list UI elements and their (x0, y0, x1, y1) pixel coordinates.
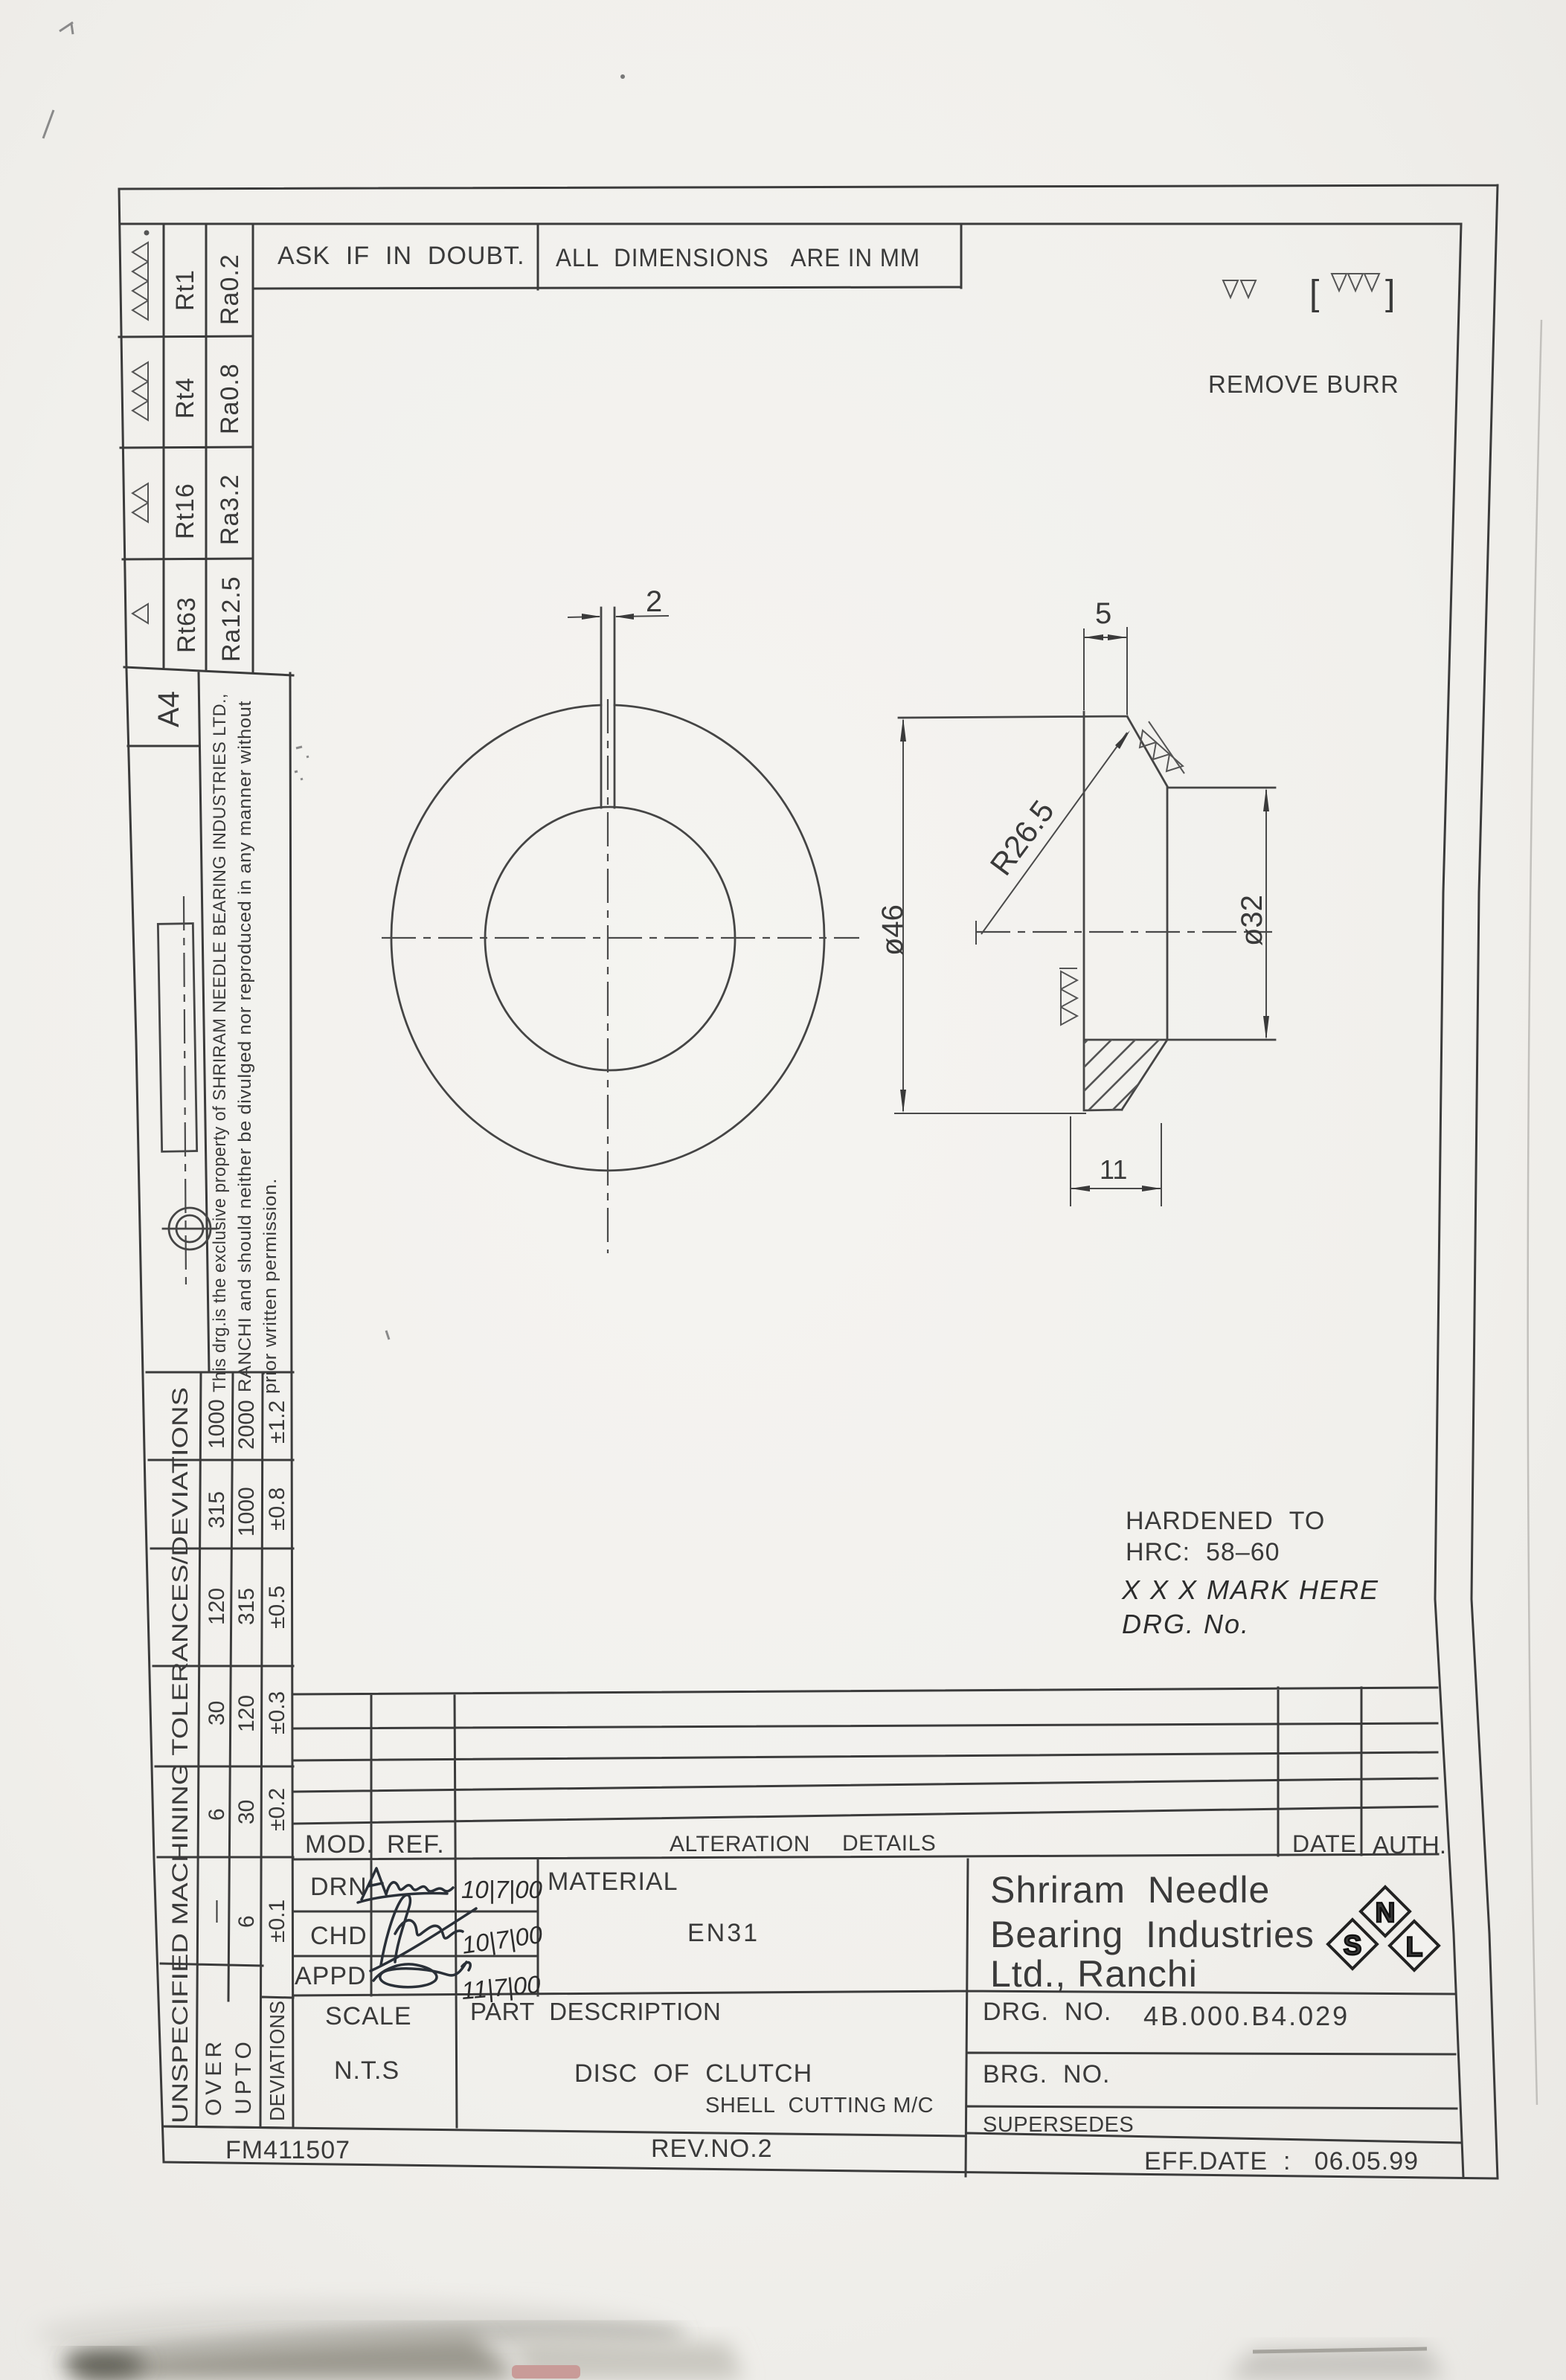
svg-text:1000: 1000 (205, 1399, 229, 1449)
svg-text:Ltd., Ranchi: Ltd., Ranchi (990, 1953, 1198, 1995)
svg-text:1000: 1000 (234, 1487, 259, 1537)
svg-text:MOD.: MOD. (305, 1830, 374, 1859)
svg-text:Shriram Needle: Shriram Needle (990, 1869, 1270, 1911)
svg-text:30: 30 (205, 1701, 229, 1725)
svg-text:RANCHI and should neither be d: RANCHI and should neither be divulged no… (235, 701, 255, 1392)
svg-text:AUTH.: AUTH. (1373, 1831, 1446, 1859)
svg-text:DRG. No.: DRG. No. (1122, 1609, 1250, 1639)
svg-text:Ra0.2: Ra0.2 (216, 254, 244, 325)
svg-text:EFF.DATE : 06.05.99: EFF.DATE : 06.05.99 (1144, 2147, 1419, 2175)
svg-text:Bearing Industries: Bearing Industries (990, 1914, 1315, 1955)
svg-text:Rt63: Rt63 (173, 596, 201, 653)
svg-text:]: ] (1385, 274, 1395, 313)
svg-text:—: — (203, 1900, 228, 1923)
svg-text:UNSPECIFIED MACHINING TOLERA: UNSPECIFIED MACHINING TOLERANCES/DEVIATI… (168, 1387, 193, 2123)
svg-text:EN31: EN31 (687, 1919, 760, 1947)
svg-text:[: [ (1309, 274, 1319, 313)
svg-text:315: 315 (234, 1588, 259, 1625)
svg-text:315: 315 (205, 1491, 229, 1528)
svg-text:Ra12.5: Ra12.5 (217, 576, 246, 662)
svg-text:±0.2: ±0.2 (265, 1788, 289, 1831)
svg-text:Rt4: Rt4 (171, 377, 199, 419)
svg-text:2000: 2000 (234, 1400, 259, 1450)
svg-text:BRG. NO.: BRG. NO. (983, 2060, 1110, 2088)
svg-text:MATERIAL: MATERIAL (548, 1868, 678, 1896)
svg-text:120: 120 (234, 1695, 259, 1732)
svg-text:5: 5 (1095, 597, 1111, 630)
svg-text:SHELL CUTTING M/C: SHELL CUTTING M/C (705, 2094, 934, 2117)
svg-text:REMOVE BURR: REMOVE BURR (1208, 370, 1399, 398)
svg-text:PART DESCRIPTION: PART DESCRIPTION (470, 1998, 721, 2025)
svg-text:DATE: DATE (1292, 1830, 1357, 1857)
svg-text:2: 2 (646, 585, 662, 618)
svg-text:FM411507: FM411507 (225, 2136, 350, 2164)
svg-text:DRG. NO.: DRG. NO. (983, 1998, 1111, 2026)
svg-text:±0.8: ±0.8 (265, 1487, 289, 1531)
svg-text:UPTO: UPTO (231, 2038, 256, 2114)
svg-text:S: S (1344, 1930, 1362, 1961)
svg-text:6: 6 (234, 1915, 259, 1928)
svg-text:APPD: APPD (295, 1962, 367, 1990)
svg-text:ø46: ø46 (876, 904, 909, 956)
svg-text:30: 30 (234, 1800, 259, 1824)
svg-text:REF.: REF. (387, 1830, 445, 1859)
svg-text:CHD: CHD (310, 1922, 368, 1950)
svg-text:±0.5: ±0.5 (265, 1586, 289, 1629)
svg-text:ø32: ø32 (1236, 895, 1268, 946)
svg-text:OVER: OVER (202, 2038, 226, 2116)
svg-text:4B.000.B4.029: 4B.000.B4.029 (1143, 2001, 1350, 2031)
svg-text:ALTERATION: ALTERATION (670, 1832, 810, 1856)
svg-text:11: 11 (1100, 1154, 1127, 1185)
svg-text:SUPERSEDES: SUPERSEDES (983, 2113, 1134, 2137)
svg-text:120: 120 (205, 1588, 229, 1625)
svg-text:ASK IF IN DOUBT.: ASK IF IN DOUBT. (277, 242, 525, 270)
svg-text:HARDENED TO: HARDENED TO (1126, 1507, 1325, 1535)
svg-text:±0.3: ±0.3 (265, 1691, 289, 1734)
svg-text:A4: A4 (153, 691, 185, 727)
svg-text:N: N (1376, 1897, 1396, 1928)
svg-text:Rt16: Rt16 (171, 483, 199, 539)
svg-text:N.T.S: N.T.S (334, 2056, 399, 2085)
svg-text:prior written permission.: prior written permission. (260, 1178, 280, 1394)
svg-text:ALL DIMENSIONS ARE IN MM: ALL DIMENSIONS ARE IN MM (556, 244, 920, 272)
svg-text:X X X MARK HERE: X X X MARK HERE (1121, 1575, 1379, 1605)
svg-text:Ra3.2: Ra3.2 (216, 474, 244, 545)
svg-text:10|7|00: 10|7|00 (461, 1876, 543, 1903)
svg-text:Ra0.8: Ra0.8 (216, 363, 244, 434)
svg-text:Rt1: Rt1 (171, 269, 199, 311)
svg-text:HRC: 58–60: HRC: 58–60 (1126, 1538, 1280, 1566)
svg-text:DISC OF CLUTCH: DISC OF CLUTCH (574, 2059, 812, 2088)
svg-text:L: L (1406, 1932, 1423, 1962)
svg-text:6: 6 (205, 1808, 229, 1821)
svg-text:±0.1: ±0.1 (265, 1900, 289, 1943)
svg-text:±1.2: ±1.2 (265, 1400, 289, 1444)
svg-text:DETAILS: DETAILS (842, 1831, 936, 1856)
svg-text:DRN: DRN (310, 1873, 368, 1901)
svg-text:This drg.is the exclusive prop: This drg.is the exclusive property of SH… (210, 693, 230, 1392)
svg-text:SCALE: SCALE (325, 2002, 412, 2030)
svg-text:DEVIATIONS: DEVIATIONS (266, 2001, 289, 2121)
svg-text:REV.NO.2: REV.NO.2 (651, 2135, 773, 2163)
